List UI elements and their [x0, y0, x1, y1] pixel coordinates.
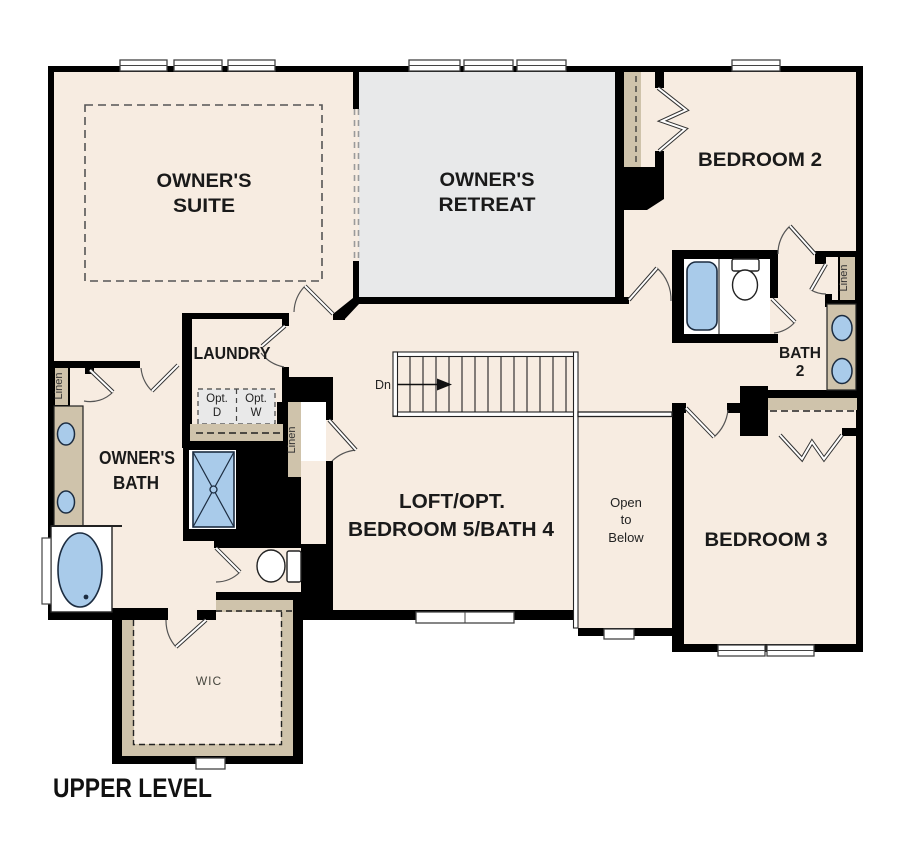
svg-text:UPPER LEVEL: UPPER LEVEL	[53, 773, 212, 803]
svg-text:LOFT/OPT.: LOFT/OPT.	[399, 491, 505, 513]
svg-text:to: to	[621, 512, 632, 527]
svg-text:OWNER'S: OWNER'S	[99, 447, 175, 468]
svg-text:Linen: Linen	[838, 265, 850, 292]
svg-text:OWNER'S: OWNER'S	[440, 170, 535, 191]
svg-text:BEDROOM 2: BEDROOM 2	[698, 150, 822, 171]
svg-text:Opt.: Opt.	[245, 393, 267, 405]
svg-text:W: W	[251, 407, 262, 419]
svg-text:Below: Below	[608, 530, 644, 545]
svg-text:BATH: BATH	[113, 472, 159, 493]
svg-text:2: 2	[796, 363, 805, 380]
svg-text:WIC: WIC	[196, 674, 222, 688]
svg-text:Open: Open	[610, 495, 642, 510]
svg-text:RETREAT: RETREAT	[439, 195, 536, 216]
svg-text:BATH: BATH	[779, 345, 821, 362]
svg-text:Linen: Linen	[53, 373, 65, 400]
svg-text:SUITE: SUITE	[173, 196, 235, 217]
svg-text:BEDROOM 5/BATH 4: BEDROOM 5/BATH 4	[348, 519, 555, 541]
svg-text:LAUNDRY: LAUNDRY	[194, 343, 271, 363]
svg-text:D: D	[213, 407, 221, 419]
svg-text:Dn: Dn	[375, 378, 391, 392]
svg-text:OWNER'S: OWNER'S	[157, 171, 252, 192]
svg-text:BEDROOM 3: BEDROOM 3	[705, 530, 828, 551]
svg-text:Opt.: Opt.	[206, 393, 228, 405]
svg-text:Linen: Linen	[286, 427, 298, 454]
